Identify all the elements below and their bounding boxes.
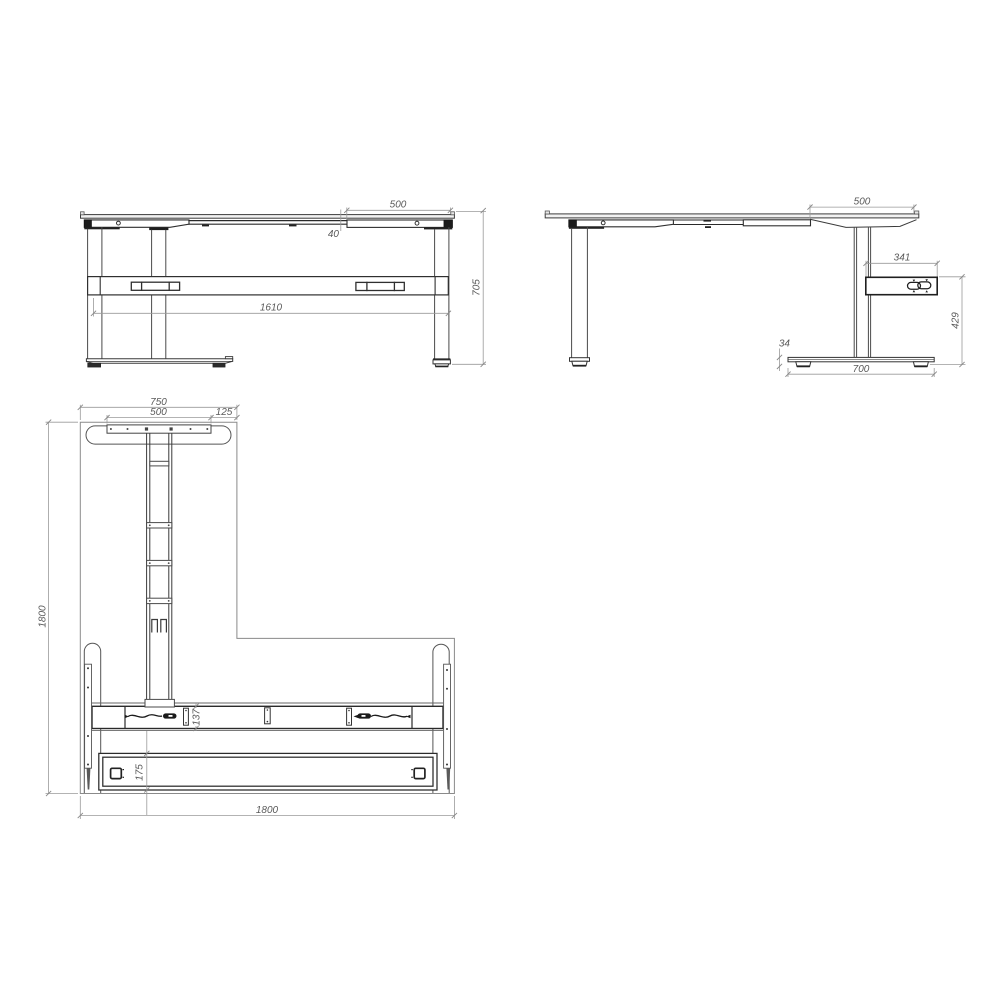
svg-text:750: 750 xyxy=(150,397,167,408)
svg-text:705: 705 xyxy=(472,279,483,296)
svg-text:341: 341 xyxy=(894,252,911,263)
svg-text:40: 40 xyxy=(328,229,340,240)
svg-text:700: 700 xyxy=(853,364,870,375)
svg-text:500: 500 xyxy=(150,407,167,418)
svg-text:137: 137 xyxy=(192,709,203,726)
svg-text:34: 34 xyxy=(779,339,791,350)
svg-text:125: 125 xyxy=(216,407,233,418)
svg-text:500: 500 xyxy=(390,200,407,211)
svg-text:429: 429 xyxy=(951,312,962,329)
svg-text:1800: 1800 xyxy=(37,605,48,628)
svg-text:1610: 1610 xyxy=(260,303,283,314)
svg-text:1800: 1800 xyxy=(256,805,279,816)
svg-text:175: 175 xyxy=(135,764,146,781)
svg-text:500: 500 xyxy=(854,197,871,208)
